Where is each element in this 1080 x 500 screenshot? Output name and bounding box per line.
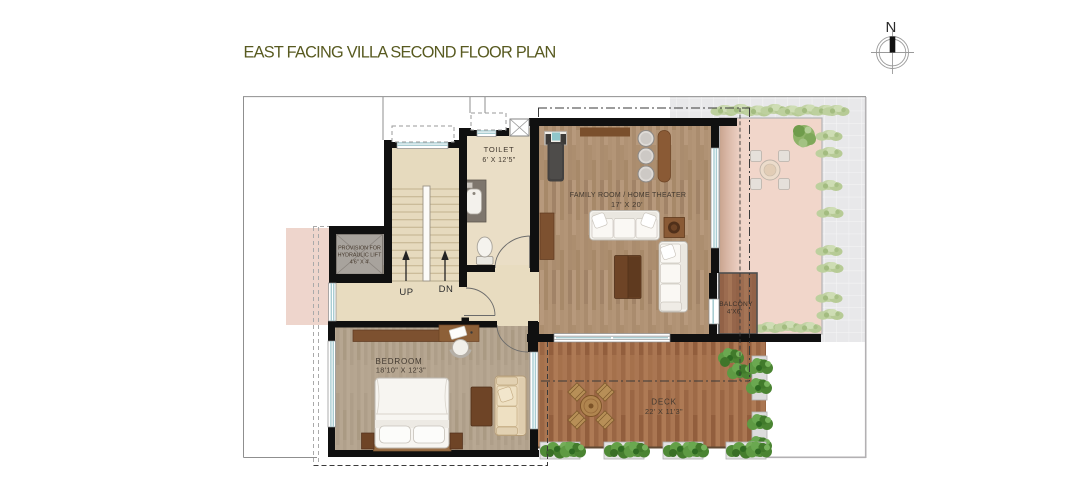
- svg-text:PROVISION FOR: PROVISION FOR: [338, 246, 381, 252]
- svg-text:DN: DN: [439, 284, 454, 295]
- svg-text:TOILET: TOILET: [484, 145, 515, 154]
- svg-text:N: N: [886, 19, 897, 36]
- svg-text:EAST FACING VILLA SECOND FLOOR: EAST FACING VILLA SECOND FLOOR PLAN: [244, 44, 556, 62]
- svg-text:4'6" X 4': 4'6" X 4': [350, 260, 370, 266]
- svg-text:FAMILY ROOM / HOME THEATER: FAMILY ROOM / HOME THEATER: [570, 192, 687, 199]
- svg-text:DECK: DECK: [651, 398, 676, 407]
- svg-text:6' X 12'5": 6' X 12'5": [482, 157, 515, 164]
- svg-text:HYDRAULIC LIFT: HYDRAULIC LIFT: [338, 253, 382, 259]
- svg-text:22' X 11'3": 22' X 11'3": [645, 407, 683, 416]
- svg-text:UP: UP: [399, 287, 413, 298]
- svg-text:4'X6': 4'X6': [727, 309, 742, 316]
- svg-text:BALCONY: BALCONY: [719, 301, 753, 308]
- svg-text:18'10" X 12'3": 18'10" X 12'3": [376, 366, 426, 375]
- svg-text:17' X 20': 17' X 20': [611, 200, 643, 209]
